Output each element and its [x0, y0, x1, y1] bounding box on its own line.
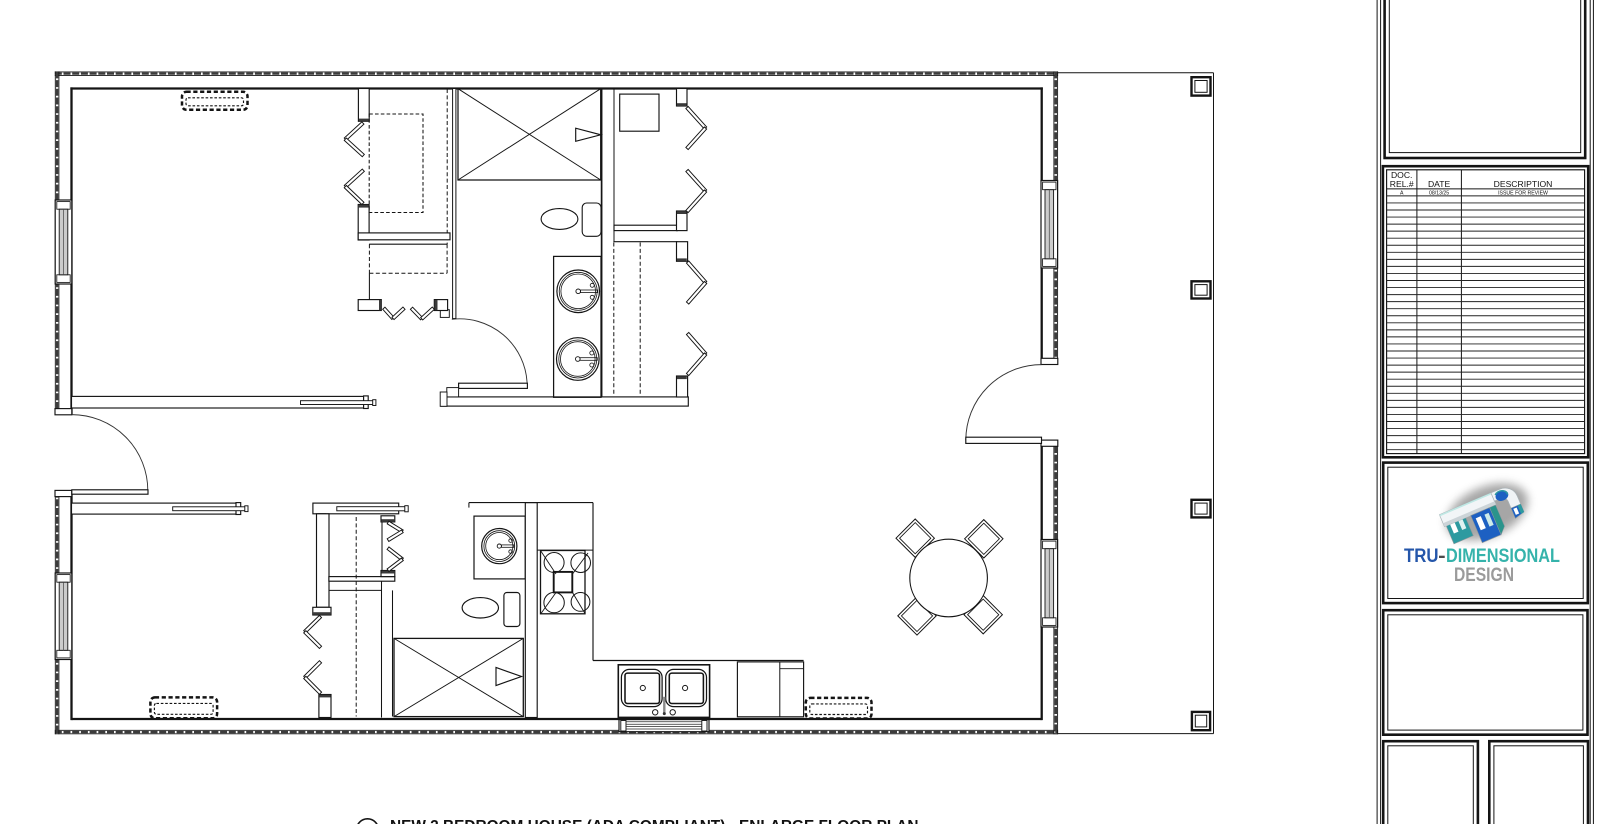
- svg-text:DATE: DATE: [1428, 179, 1451, 189]
- svg-text:ISSUE FOR REVIEW: ISSUE FOR REVIEW: [1498, 191, 1548, 197]
- svg-text:TRU: TRU: [1404, 546, 1439, 567]
- svg-text:DESCRIPTION: DESCRIPTION: [1494, 179, 1553, 189]
- svg-text:REL.#: REL.#: [1390, 179, 1414, 189]
- svg-text:DIMENSIONAL: DIMENSIONAL: [1446, 546, 1560, 567]
- svg-text:A: A: [1400, 191, 1404, 197]
- svg-text:NEW 2 BEDROOM HOUSE (ADA COMPL: NEW 2 BEDROOM HOUSE (ADA COMPLIANT) - EN…: [390, 818, 919, 824]
- svg-text:-: -: [1438, 546, 1446, 567]
- svg-text:DESIGN: DESIGN: [1454, 565, 1514, 586]
- svg-text:08/13/25: 08/13/25: [1429, 191, 1449, 197]
